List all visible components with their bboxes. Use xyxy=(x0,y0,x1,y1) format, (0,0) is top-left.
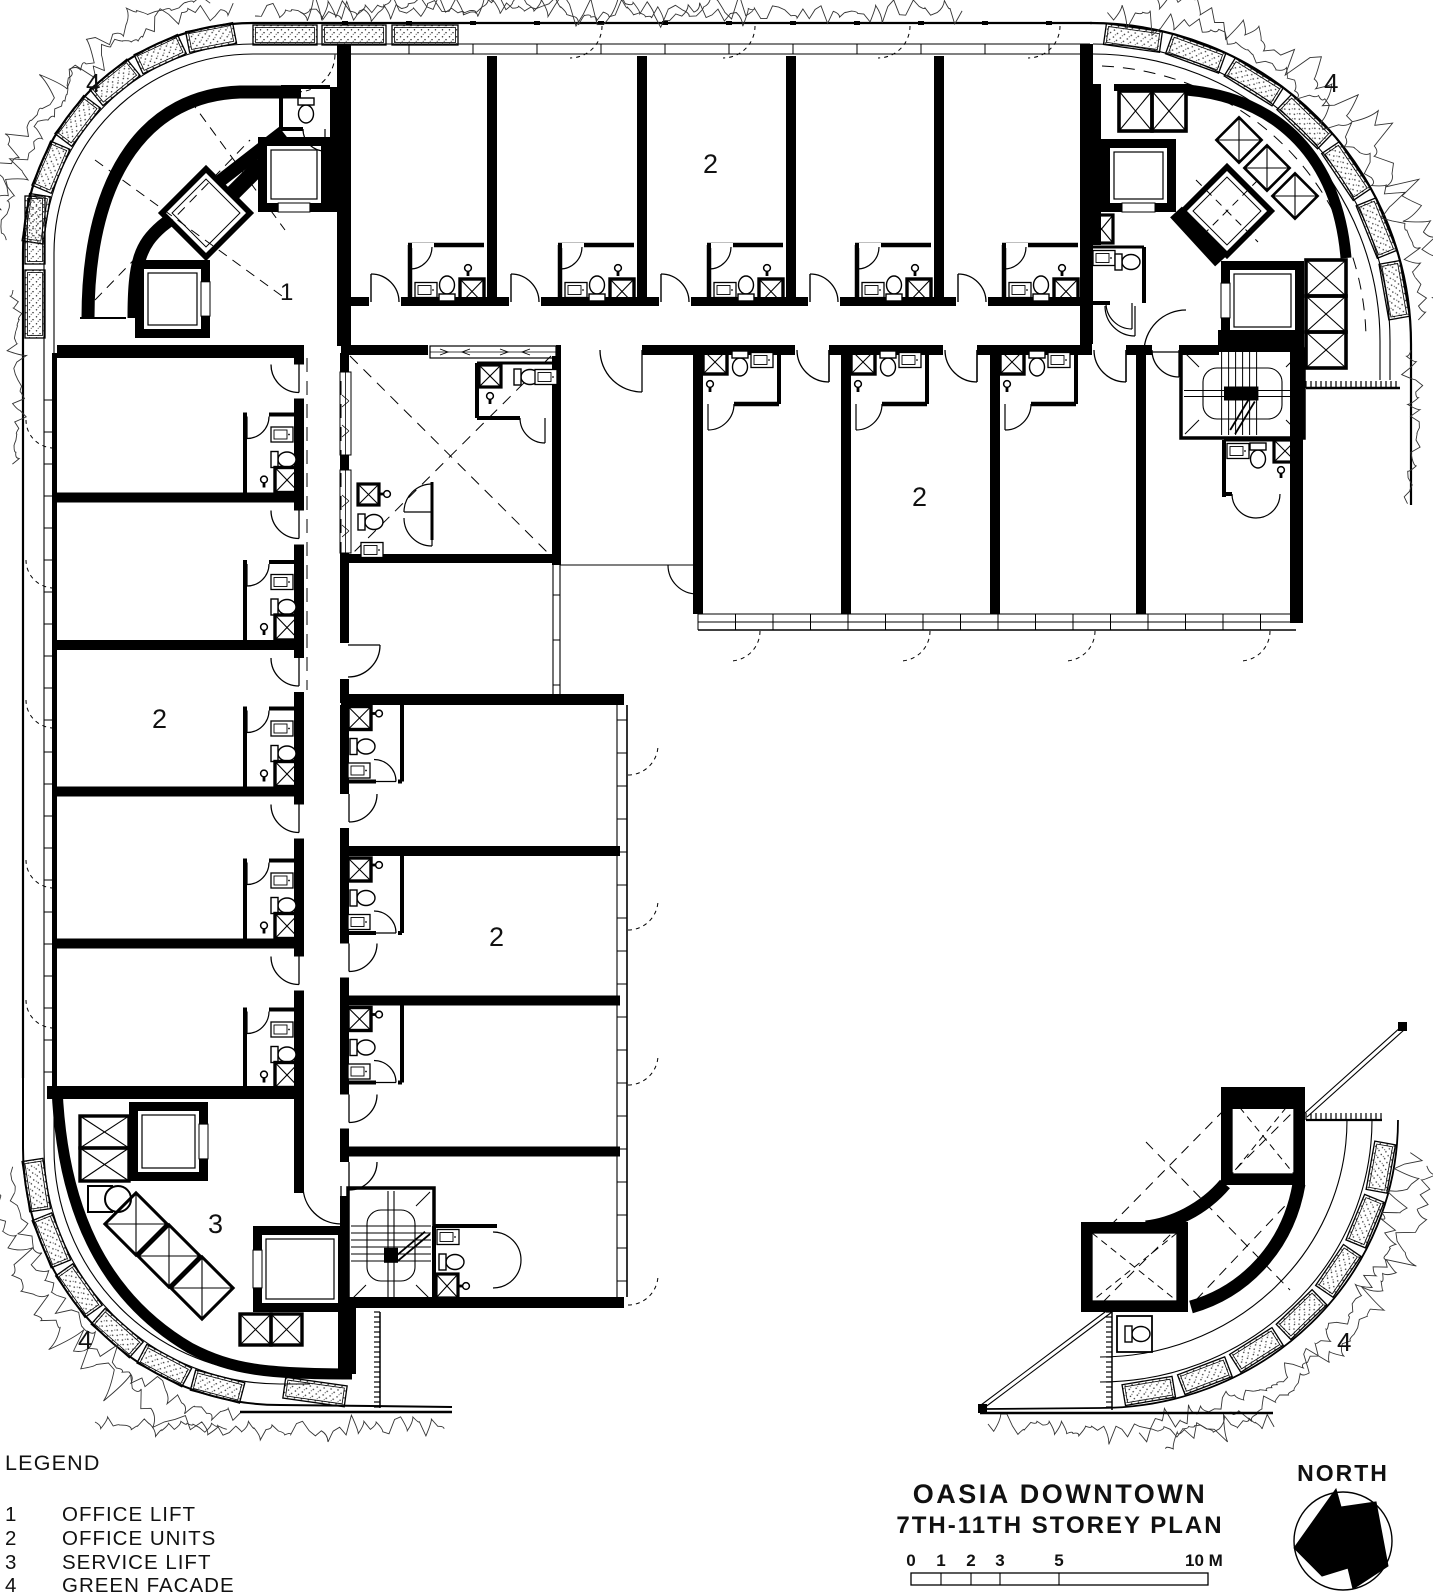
svg-text:NORTH: NORTH xyxy=(1297,1460,1389,1486)
svg-text:10 M: 10 M xyxy=(1185,1551,1223,1570)
svg-text:4: 4 xyxy=(86,68,100,98)
svg-text:1: 1 xyxy=(5,1503,17,1526)
svg-text:2: 2 xyxy=(966,1551,975,1570)
svg-text:4: 4 xyxy=(78,1325,92,1355)
svg-text:1: 1 xyxy=(936,1551,945,1570)
svg-text:2: 2 xyxy=(5,1527,17,1550)
svg-text:OFFICE LIFT: OFFICE LIFT xyxy=(62,1503,196,1526)
svg-text:SERVICE LIFT: SERVICE LIFT xyxy=(62,1551,211,1574)
svg-text:2: 2 xyxy=(912,482,927,512)
svg-text:GREEN FACADE: GREEN FACADE xyxy=(62,1574,235,1594)
svg-text:0: 0 xyxy=(906,1551,915,1570)
svg-text:2: 2 xyxy=(703,149,718,179)
svg-text:4: 4 xyxy=(1337,1327,1351,1357)
svg-text:2: 2 xyxy=(489,922,504,952)
svg-text:3: 3 xyxy=(208,1209,223,1239)
svg-text:2: 2 xyxy=(152,704,167,734)
svg-text:7TH-11TH STOREY PLAN: 7TH-11TH STOREY PLAN xyxy=(896,1512,1223,1539)
svg-text:5: 5 xyxy=(1054,1551,1063,1570)
svg-text:OASIA DOWNTOWN: OASIA DOWNTOWN xyxy=(913,1479,1207,1509)
svg-text:4: 4 xyxy=(1324,68,1338,98)
svg-text:OFFICE UNITS: OFFICE UNITS xyxy=(62,1527,216,1550)
svg-text:3: 3 xyxy=(5,1551,17,1574)
svg-text:1: 1 xyxy=(280,279,293,306)
svg-text:4: 4 xyxy=(5,1574,17,1594)
svg-text:3: 3 xyxy=(995,1551,1004,1570)
svg-text:LEGEND: LEGEND xyxy=(5,1451,101,1475)
